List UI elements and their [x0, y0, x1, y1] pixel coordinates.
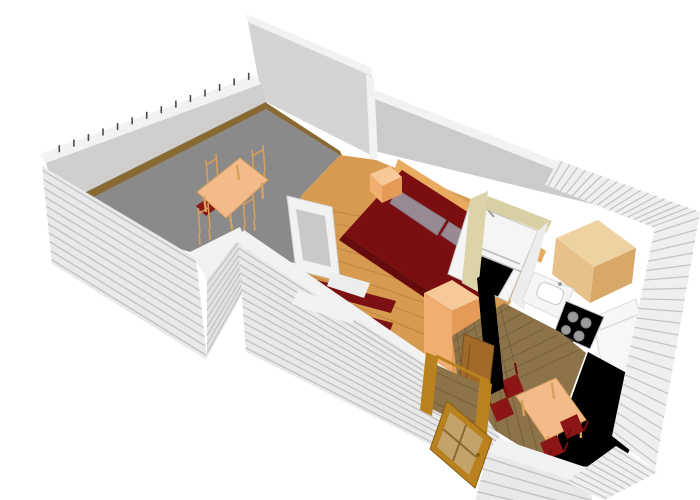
floor-plan-canvas	[0, 0, 700, 500]
burner-2	[581, 318, 591, 328]
burner-1	[568, 312, 578, 322]
sink-faucet	[558, 282, 562, 286]
entry-door-knob	[476, 453, 480, 457]
floor-plan-render	[0, 0, 700, 500]
burner-3	[562, 326, 571, 335]
burner-4	[574, 331, 584, 341]
